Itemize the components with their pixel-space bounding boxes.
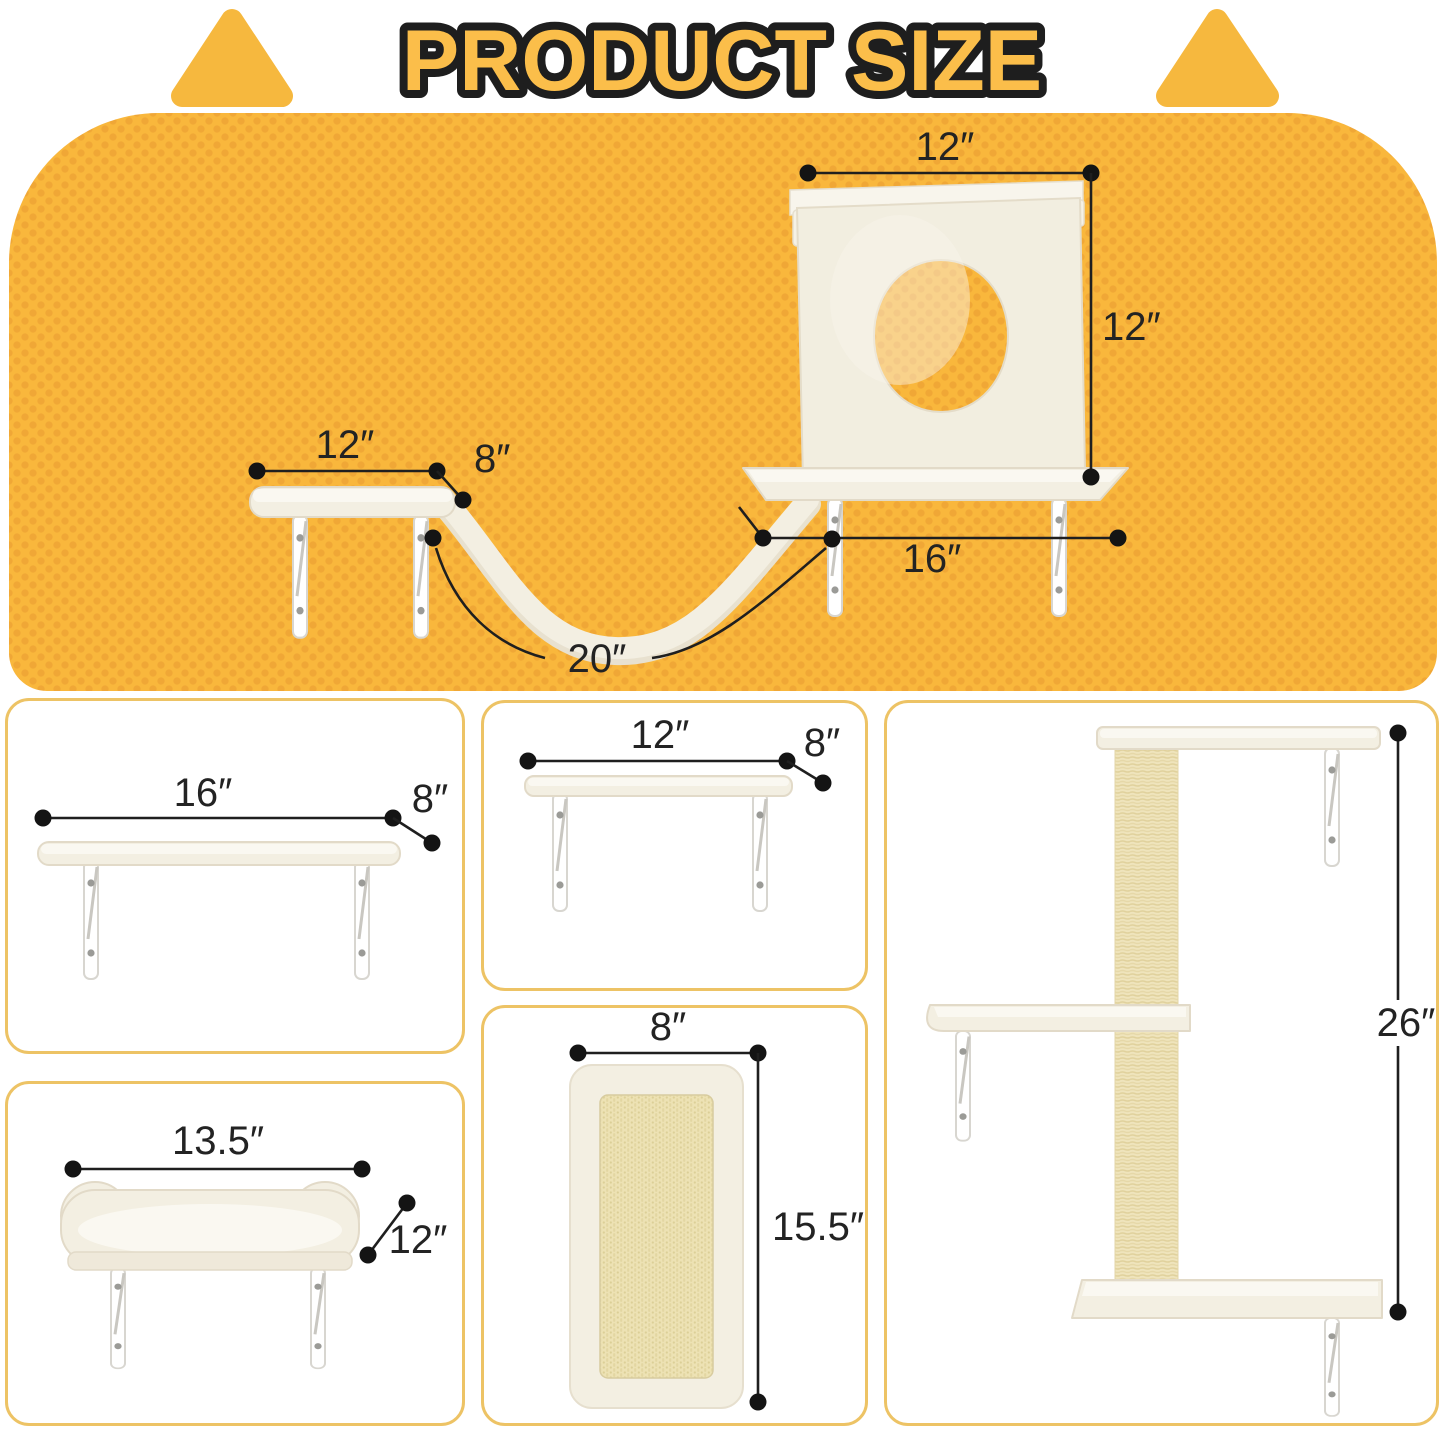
cat-bed-shape (61, 1182, 359, 1270)
dim-label-shelf-large-depth: 8″ (412, 777, 448, 821)
dim-label-shelf-small-depth: 8″ (804, 721, 840, 765)
cell-shelf-large-illustration: 16″ 8″ (35, 771, 449, 979)
dim-label-left-shelf-depth: 8″ (474, 437, 510, 481)
dim-label-left-shelf-width: 12″ (316, 423, 375, 467)
dim-label-tree-height: 26″ (1377, 1001, 1436, 1045)
product-size-infographic: PRODUCT SIZE (0, 0, 1445, 1430)
illustration-overlay: PRODUCT SIZE (0, 0, 1445, 1430)
tree-bottom-shelf (1072, 1280, 1382, 1318)
dim-bed-depth: 12″ (360, 1195, 448, 1264)
dim-label-right-shelf-width: 16″ (903, 537, 962, 581)
dim-scratcher-height: 15.5″ (750, 1053, 865, 1411)
dim-label-bed-width: 13.5″ (172, 1119, 264, 1163)
dim-bed-width: 13.5″ (65, 1119, 371, 1178)
left-shelf-illustration (250, 487, 455, 517)
dim-shelf-small-depth: 8″ (787, 721, 840, 792)
shelf-bracket (84, 861, 98, 979)
main-wall-set-illustration: 12″ 12″ 12″ 8″ (249, 125, 1161, 681)
tree-top-plank (1097, 727, 1380, 749)
dim-label-bed-depth: 12″ (389, 1218, 448, 1262)
cell-tree-illustration: 26″ (927, 725, 1435, 1416)
dim-left-shelf-width: 12″ (249, 423, 446, 480)
page-title: PRODUCT SIZE (402, 13, 1042, 109)
dim-scratcher-width: 8″ (570, 1005, 767, 1062)
right-shelf-illustration (743, 468, 1128, 500)
shelf-bracket (956, 1031, 970, 1141)
cat-ear-right (1167, 20, 1268, 96)
dim-shelf-large-depth: 8″ (393, 777, 448, 852)
tree-mid-shelf (927, 1005, 1190, 1031)
dim-label-house-height: 12″ (1102, 305, 1161, 349)
shelf-bracket (311, 1268, 325, 1368)
dim-tree-height: 26″ (1377, 725, 1436, 1321)
shelf-bracket (828, 498, 842, 616)
shelf-bracket (553, 793, 567, 911)
cell-scratcher-illustration: 8″ 15.5″ (570, 1005, 865, 1411)
header: PRODUCT SIZE (182, 13, 1268, 109)
shelf-bracket (753, 793, 767, 911)
shelf-bracket (1325, 1318, 1339, 1416)
shelf-bracket (1052, 498, 1066, 616)
dim-house-height: 12″ (1083, 173, 1161, 486)
dim-label-shelf-large-width: 16″ (174, 771, 233, 815)
scratcher-sisal-area (600, 1095, 713, 1378)
dim-label-bridge-length: 20″ (568, 637, 627, 681)
shelf-bracket (1325, 748, 1339, 866)
dim-label-shelf-small-width: 12″ (631, 713, 690, 757)
dim-shelf-large-width: 16″ (35, 771, 402, 827)
dim-label-scratcher-height: 15.5″ (772, 1205, 864, 1249)
dim-shelf-small-width: 12″ (520, 713, 796, 770)
dim-house-width: 12″ (800, 125, 1100, 182)
shelf-bracket (111, 1268, 125, 1368)
cell-bed-illustration: 13.5″ 12″ (61, 1119, 447, 1368)
cat-ear-left (182, 20, 282, 96)
dim-label-house-width: 12″ (916, 125, 975, 169)
cell-shelf-small-illustration: 12″ 8″ (520, 713, 841, 911)
dim-label-scratcher-width: 8″ (650, 1005, 686, 1049)
cat-bridge-top (445, 500, 808, 648)
shelf-bracket (293, 515, 307, 638)
cat-house-illustration (790, 181, 1085, 480)
shelf-bracket (355, 861, 369, 979)
